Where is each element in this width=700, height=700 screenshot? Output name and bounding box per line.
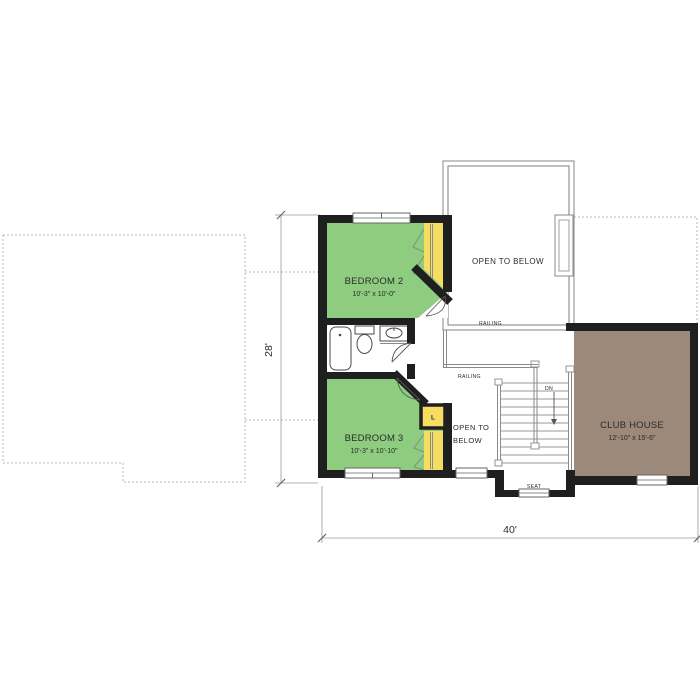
staircase: DN bbox=[495, 361, 574, 476]
window-bedroom3-bottom bbox=[345, 468, 400, 478]
clubhouse-floor bbox=[574, 331, 691, 477]
toilet-bowl bbox=[357, 335, 372, 354]
wall-clubhouse-top bbox=[566, 323, 698, 331]
open-to-below-upper-label: OPEN TO BELOW bbox=[472, 257, 544, 266]
railings: RAILING bbox=[444, 330, 539, 380]
stairs-dn-label: DN bbox=[545, 386, 553, 392]
open-to-below-lower-line1: OPEN TO bbox=[453, 423, 489, 432]
wall-bath-right-lower bbox=[407, 364, 415, 379]
floor-plan-svg: 28' 40' OPEN TO BELOW RAILING bbox=[0, 0, 700, 700]
tub-drain bbox=[339, 334, 342, 337]
fireplace-niche bbox=[555, 215, 573, 276]
bedroom3-closet-floor bbox=[424, 431, 443, 470]
clubhouse-name: CLUB HOUSE bbox=[600, 420, 664, 431]
window-clubhouse-bottom bbox=[637, 475, 667, 485]
floor-plan-page: 28' 40' OPEN TO BELOW RAILING bbox=[0, 0, 700, 700]
wall-bedroom2-bath bbox=[318, 318, 415, 325]
bedroom2-size: 10'-3" x 10'-0" bbox=[352, 291, 396, 298]
toilet-tank bbox=[355, 326, 374, 334]
window-seat-bay bbox=[519, 489, 549, 497]
linen-closet-label: L bbox=[431, 415, 435, 422]
depth-dimension-label: 28' bbox=[263, 343, 275, 357]
wall-left bbox=[318, 215, 327, 478]
open-to-below-lower-line2: BELOW bbox=[453, 436, 483, 445]
wall-bath-right-upper bbox=[407, 318, 415, 344]
window-hall-bottom bbox=[456, 468, 487, 478]
bedroom3-name: BEDROOM 3 bbox=[345, 433, 404, 444]
bedroom3-size: 10'-3" x 10'-10" bbox=[351, 448, 398, 455]
bathtub bbox=[330, 327, 351, 370]
wall-bedroom2-closet-right bbox=[443, 215, 452, 292]
width-dimension-label: 40' bbox=[503, 524, 517, 536]
door-bathroom bbox=[392, 343, 411, 362]
roof-outline-right bbox=[574, 217, 697, 323]
clubhouse-size: 12'-10" x 15'-6" bbox=[609, 435, 656, 442]
railing-upper-label: RAILING bbox=[479, 321, 502, 327]
window-bedroom2-top bbox=[353, 213, 410, 223]
wall-clubhouse-right bbox=[690, 323, 698, 485]
seat-label: SEAT bbox=[527, 484, 542, 490]
wall-bath-bedroom3 bbox=[318, 372, 398, 379]
bathroom-fixtures bbox=[330, 326, 408, 370]
railing-lower-label: RAILING bbox=[458, 374, 481, 380]
bedroom2-name: BEDROOM 2 bbox=[345, 276, 404, 287]
wall-clubhouse-bottom bbox=[574, 476, 698, 485]
upper-open-to-below: OPEN TO BELOW RAILING bbox=[443, 161, 574, 330]
roof-outline-left bbox=[3, 235, 245, 482]
